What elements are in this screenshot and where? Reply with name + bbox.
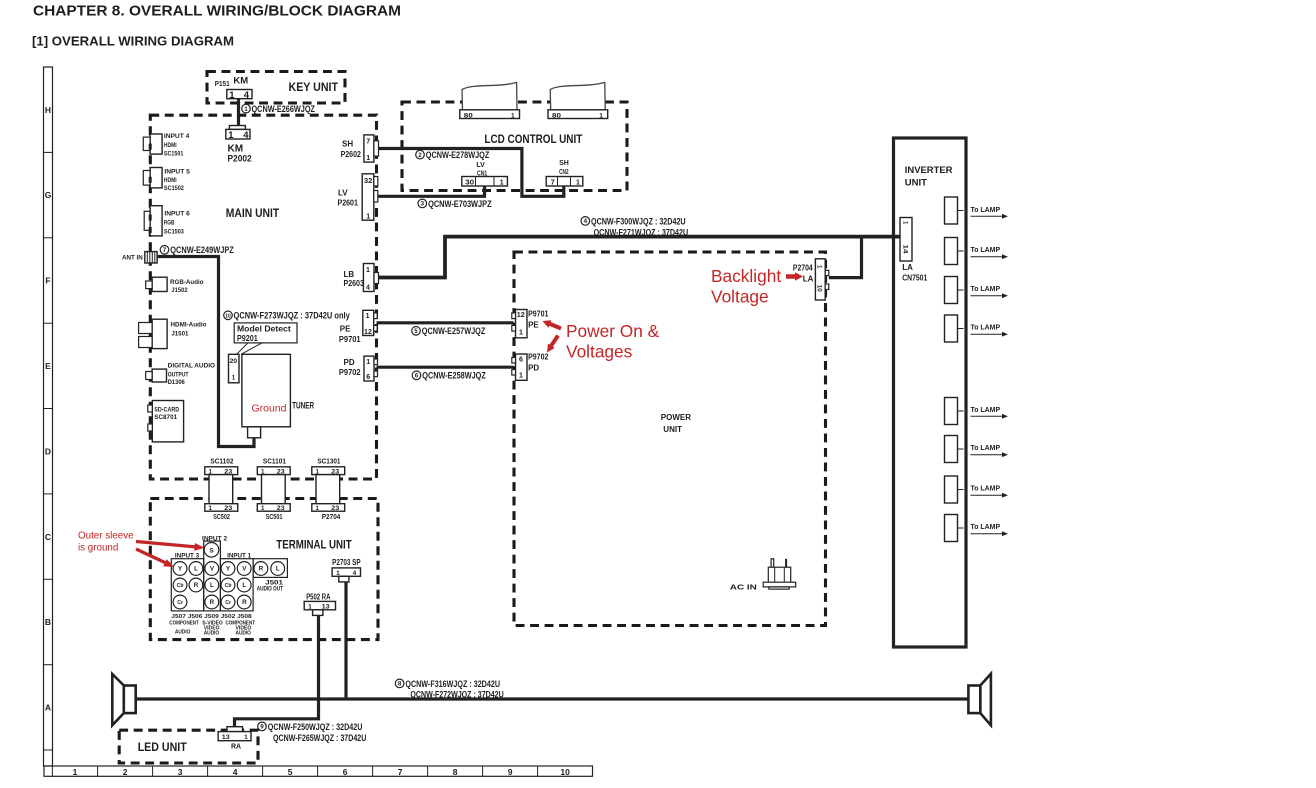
svg-text:[1] OVERALL WIRING DIAGRAM: [1] OVERALL WIRING DIAGRAM	[32, 34, 234, 49]
svg-text:INVERTER: INVERTER	[905, 165, 953, 176]
svg-text:LCD CONTROL UNIT: LCD CONTROL UNIT	[484, 134, 582, 146]
svg-text:P2603: P2603	[344, 279, 365, 288]
svg-text:1: 1	[316, 505, 320, 512]
svg-text:12: 12	[517, 312, 525, 319]
svg-text:P2602: P2602	[341, 150, 362, 159]
svg-text:SC1501: SC1501	[164, 150, 184, 157]
svg-text:1: 1	[261, 505, 265, 512]
svg-text:1: 1	[366, 213, 370, 220]
svg-text:A: A	[45, 703, 51, 713]
svg-text:ANT IN: ANT IN	[122, 255, 143, 262]
svg-text:Outer sleeve: Outer sleeve	[78, 531, 134, 542]
svg-text:QCNW-E258WJQZ: QCNW-E258WJQZ	[422, 371, 486, 381]
svg-text:1: 1	[73, 767, 78, 777]
svg-text:6: 6	[519, 357, 523, 364]
svg-text:SC1102: SC1102	[210, 459, 233, 466]
svg-text:23: 23	[224, 505, 233, 512]
svg-text:6: 6	[343, 767, 348, 777]
svg-text:P9701: P9701	[528, 310, 549, 319]
svg-text:RA: RA	[231, 744, 241, 751]
svg-text:Power On &: Power On &	[566, 321, 660, 341]
svg-text:TERMINAL UNIT: TERMINAL UNIT	[276, 539, 351, 551]
svg-text:H: H	[45, 105, 51, 115]
svg-text:CHAPTER 8. OVERALL WIRING/BLOC: CHAPTER 8. OVERALL WIRING/BLOCK DIAGRAM	[33, 3, 401, 20]
svg-text:4: 4	[353, 570, 357, 577]
svg-text:QCNW-F250WJQZ : 32D42U: QCNW-F250WJQZ : 32D42U	[268, 722, 363, 732]
svg-text:1: 1	[209, 505, 213, 512]
svg-text:QCNW-F265WJQZ : 37D42U: QCNW-F265WJQZ : 37D42U	[273, 733, 366, 743]
svg-text:SC1101: SC1101	[263, 459, 286, 466]
svg-text:LB: LB	[344, 270, 355, 279]
svg-text:L: L	[194, 566, 198, 573]
svg-text:80: 80	[464, 112, 473, 119]
svg-text:1: 1	[519, 372, 523, 379]
svg-text:30: 30	[465, 179, 474, 186]
svg-text:P2704: P2704	[793, 263, 813, 272]
svg-text:5: 5	[414, 328, 418, 335]
svg-text:23: 23	[331, 505, 340, 512]
svg-text:7: 7	[163, 247, 167, 254]
svg-text:CN2: CN2	[559, 169, 569, 176]
svg-text:12: 12	[364, 329, 372, 336]
svg-text:1: 1	[815, 265, 822, 269]
svg-text:9: 9	[508, 767, 513, 777]
svg-text:QCNW-F272WJQZ : 37D42U: QCNW-F272WJQZ : 37D42U	[410, 690, 503, 700]
svg-text:QCNW-E257WJQZ: QCNW-E257WJQZ	[422, 326, 486, 336]
svg-text:J1502: J1502	[171, 287, 188, 294]
svg-text:LA: LA	[902, 263, 913, 272]
svg-text:S: S	[209, 547, 214, 554]
svg-text:SC502: SC502	[213, 514, 230, 521]
svg-text:LV: LV	[476, 162, 485, 169]
svg-text:J1501: J1501	[171, 331, 189, 338]
svg-text:L: L	[276, 566, 280, 573]
svg-text:OUTPUT: OUTPUT	[168, 371, 189, 378]
svg-text:P2002: P2002	[228, 154, 252, 164]
svg-text:HDMI-Audio: HDMI-Audio	[171, 321, 207, 328]
svg-text:10: 10	[560, 767, 570, 777]
svg-text:SC1503: SC1503	[164, 228, 184, 235]
svg-text:AUDIO OUT: AUDIO OUT	[257, 586, 284, 592]
svg-text:1: 1	[228, 130, 234, 141]
svg-text:To LAMP: To LAMP	[971, 486, 1001, 493]
svg-text:AC IN: AC IN	[730, 584, 757, 591]
svg-text:9: 9	[260, 724, 264, 731]
svg-text:1: 1	[366, 267, 370, 274]
svg-text:AUDIO: AUDIO	[175, 630, 190, 636]
svg-text:QCNW-E703WJPZ: QCNW-E703WJPZ	[428, 199, 492, 209]
svg-text:14: 14	[901, 245, 908, 255]
svg-text:1: 1	[511, 112, 515, 119]
svg-text:SC501: SC501	[266, 514, 283, 521]
svg-text:HDMI: HDMI	[164, 142, 177, 149]
svg-text:Voltages: Voltages	[566, 342, 633, 362]
svg-text:E: E	[45, 361, 51, 371]
svg-text:P9701: P9701	[339, 335, 361, 344]
svg-text:D1306: D1306	[168, 379, 186, 386]
svg-text:MAIN UNIT: MAIN UNIT	[226, 208, 279, 220]
svg-text:QCNW-F300WJQZ : 32D42U: QCNW-F300WJQZ : 32D42U	[591, 216, 686, 226]
svg-text:D: D	[45, 447, 51, 457]
svg-text:R: R	[242, 599, 247, 606]
svg-text:Backlight: Backlight	[711, 266, 781, 286]
svg-text:10: 10	[815, 285, 822, 293]
svg-text:1: 1	[308, 604, 312, 611]
svg-text:SC8701: SC8701	[154, 414, 177, 421]
svg-text:Cb: Cb	[177, 583, 184, 589]
svg-text:1: 1	[232, 374, 236, 381]
svg-text:QCNW-E266WJQZ: QCNW-E266WJQZ	[252, 104, 316, 114]
svg-text:P2601: P2601	[338, 199, 359, 208]
svg-text:4: 4	[584, 218, 588, 225]
svg-text:KEY UNIT: KEY UNIT	[289, 82, 339, 94]
svg-text:PE: PE	[528, 320, 539, 329]
svg-text:QCNW-F273WJQZ : 37D42U only: QCNW-F273WJQZ : 37D42U only	[234, 311, 350, 321]
svg-text:1: 1	[576, 179, 580, 186]
svg-text:J507 J506 J509 J502 J508: J507 J506 J509 J502 J508	[171, 614, 251, 620]
svg-text:PE: PE	[340, 324, 351, 333]
svg-text:L: L	[242, 582, 246, 589]
svg-text:1: 1	[244, 734, 248, 741]
svg-text:80: 80	[552, 112, 561, 119]
svg-text:LV: LV	[338, 189, 348, 198]
svg-text:1: 1	[366, 313, 370, 320]
svg-text:HDMI: HDMI	[164, 177, 177, 184]
svg-text:1: 1	[244, 106, 248, 113]
svg-text:To LAMP: To LAMP	[971, 325, 1001, 332]
svg-text:QCNW-E249WJPZ: QCNW-E249WJPZ	[170, 245, 234, 255]
svg-text:LED UNIT: LED UNIT	[138, 742, 187, 754]
svg-text:1: 1	[599, 112, 603, 119]
svg-text:Ground: Ground	[252, 403, 287, 415]
svg-text:Cr: Cr	[177, 600, 183, 606]
svg-text:To LAMP: To LAMP	[971, 445, 1001, 452]
svg-text:COMPONENT: COMPONENT	[169, 620, 199, 626]
svg-text:C: C	[45, 532, 51, 542]
svg-text:13: 13	[222, 734, 231, 741]
svg-text:R: R	[210, 599, 215, 606]
svg-text:To LAMP: To LAMP	[971, 247, 1001, 254]
svg-text:Voltage: Voltage	[711, 287, 769, 307]
svg-text:5: 5	[288, 767, 293, 777]
svg-text:SH: SH	[559, 160, 569, 167]
svg-text:CN7501: CN7501	[902, 274, 928, 283]
svg-text:QCNW-E278WJQZ: QCNW-E278WJQZ	[426, 150, 490, 160]
svg-text:SD-CARD: SD-CARD	[154, 406, 179, 413]
svg-text:G: G	[45, 190, 52, 200]
svg-text:4: 4	[233, 767, 238, 777]
svg-text:B: B	[45, 617, 51, 627]
svg-text:P2703 SP: P2703 SP	[332, 558, 361, 567]
svg-text:2: 2	[418, 152, 422, 159]
svg-text:To LAMP: To LAMP	[971, 407, 1001, 414]
svg-text:1: 1	[366, 155, 370, 162]
svg-text:P502 RA: P502 RA	[306, 593, 330, 602]
svg-text:32: 32	[364, 178, 373, 185]
svg-text:Cb: Cb	[225, 583, 232, 589]
svg-text:8: 8	[453, 767, 458, 777]
svg-text:8: 8	[398, 681, 402, 688]
svg-text:4: 4	[366, 285, 370, 292]
svg-text:RGB-Audio: RGB-Audio	[170, 279, 204, 286]
svg-text:QCNW-F316WJQZ : 32D42U: QCNW-F316WJQZ : 32D42U	[405, 679, 500, 689]
svg-text:RGB: RGB	[164, 219, 175, 226]
svg-text:is ground: is ground	[78, 543, 118, 554]
svg-text:3: 3	[178, 767, 183, 777]
svg-text:To LAMP: To LAMP	[971, 524, 1001, 531]
svg-text:1: 1	[901, 221, 908, 225]
svg-text:P9702: P9702	[528, 353, 549, 362]
svg-text:UNIT: UNIT	[905, 177, 927, 188]
svg-text:PD: PD	[344, 358, 355, 367]
svg-text:AUDIO: AUDIO	[204, 631, 219, 637]
svg-text:20: 20	[230, 358, 238, 365]
svg-text:6: 6	[415, 373, 419, 380]
svg-text:6: 6	[366, 374, 370, 381]
svg-text:To LAMP: To LAMP	[971, 207, 1001, 214]
svg-text:P9702: P9702	[339, 368, 361, 377]
svg-text:1: 1	[366, 359, 370, 366]
svg-text:7: 7	[551, 179, 555, 186]
svg-text:2: 2	[123, 767, 128, 777]
svg-text:KM: KM	[233, 76, 248, 87]
svg-text:INPUT 6: INPUT 6	[164, 211, 190, 218]
svg-text:SC1502: SC1502	[164, 185, 184, 192]
svg-text:23: 23	[277, 505, 286, 512]
svg-text:R: R	[259, 566, 264, 573]
svg-text:L: L	[210, 582, 214, 589]
svg-text:4: 4	[243, 130, 249, 141]
svg-text:SH: SH	[342, 139, 353, 148]
svg-text:10: 10	[225, 314, 231, 320]
svg-text:TUNER: TUNER	[292, 400, 314, 410]
svg-text:P9201: P9201	[237, 333, 258, 343]
svg-text:Cr: Cr	[225, 600, 231, 606]
svg-text:3: 3	[421, 201, 425, 208]
svg-text:4: 4	[244, 90, 250, 101]
svg-text:7: 7	[366, 139, 370, 146]
svg-text:1: 1	[229, 90, 235, 101]
svg-text:INPUT 5: INPUT 5	[164, 169, 190, 176]
svg-text:To LAMP: To LAMP	[971, 286, 1001, 293]
svg-text:R: R	[194, 582, 199, 589]
svg-text:UNIT: UNIT	[663, 425, 682, 434]
svg-text:INPUT 4: INPUT 4	[164, 133, 190, 140]
svg-text:AUDIO: AUDIO	[236, 631, 251, 637]
svg-text:1: 1	[500, 179, 504, 186]
svg-text:1: 1	[519, 330, 523, 337]
svg-text:DIGITAL AUDIO: DIGITAL AUDIO	[168, 363, 215, 370]
svg-text:P2704: P2704	[322, 514, 341, 521]
svg-text:POWER: POWER	[661, 413, 691, 422]
svg-text:PD: PD	[528, 363, 539, 372]
svg-text:F: F	[45, 276, 50, 286]
svg-text:P151: P151	[215, 81, 230, 88]
svg-text:LA: LA	[803, 275, 814, 284]
svg-text:QCNW-F271WJQZ : 37D42U: QCNW-F271WJQZ : 37D42U	[594, 227, 689, 237]
svg-text:SC1301: SC1301	[317, 459, 340, 466]
svg-text:7: 7	[398, 767, 403, 777]
